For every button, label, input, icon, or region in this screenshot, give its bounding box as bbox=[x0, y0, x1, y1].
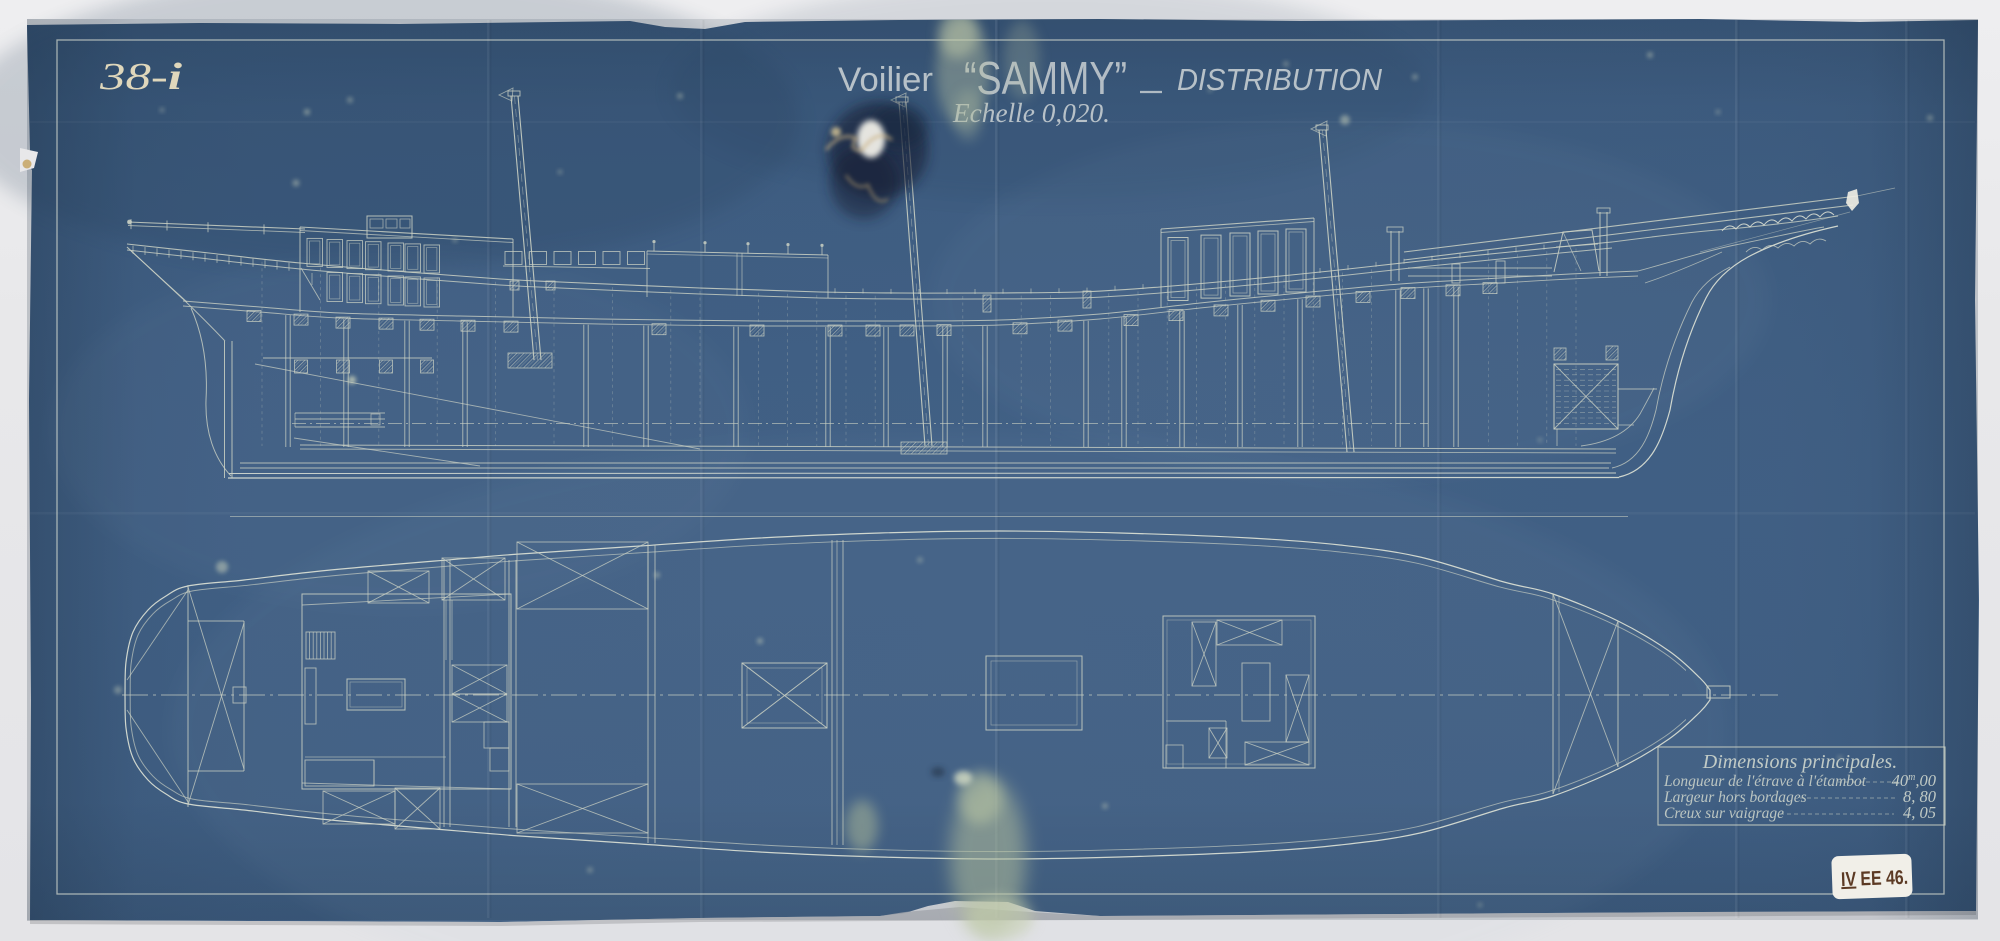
svg-text:Longueur de l'étrave à l'étamb: Longueur de l'étrave à l'étambot bbox=[1663, 773, 1867, 790]
svg-text:Voilier: Voilier bbox=[838, 61, 933, 99]
svg-text:38-i: 38-i bbox=[99, 56, 183, 98]
svg-text:Largeur hors bordages: Largeur hors bordages bbox=[1663, 789, 1807, 806]
svg-text:Creux sur vaigrage: Creux sur vaigrage bbox=[1664, 805, 1784, 822]
svg-text:Dimensions principales.: Dimensions principales. bbox=[1702, 751, 1897, 773]
svg-text:DISTRIBUTION: DISTRIBUTION bbox=[1177, 62, 1383, 97]
svg-text:IV EE 46.: IV EE 46. bbox=[1841, 867, 1909, 891]
svg-text:4, 05: 4, 05 bbox=[1903, 803, 1936, 822]
